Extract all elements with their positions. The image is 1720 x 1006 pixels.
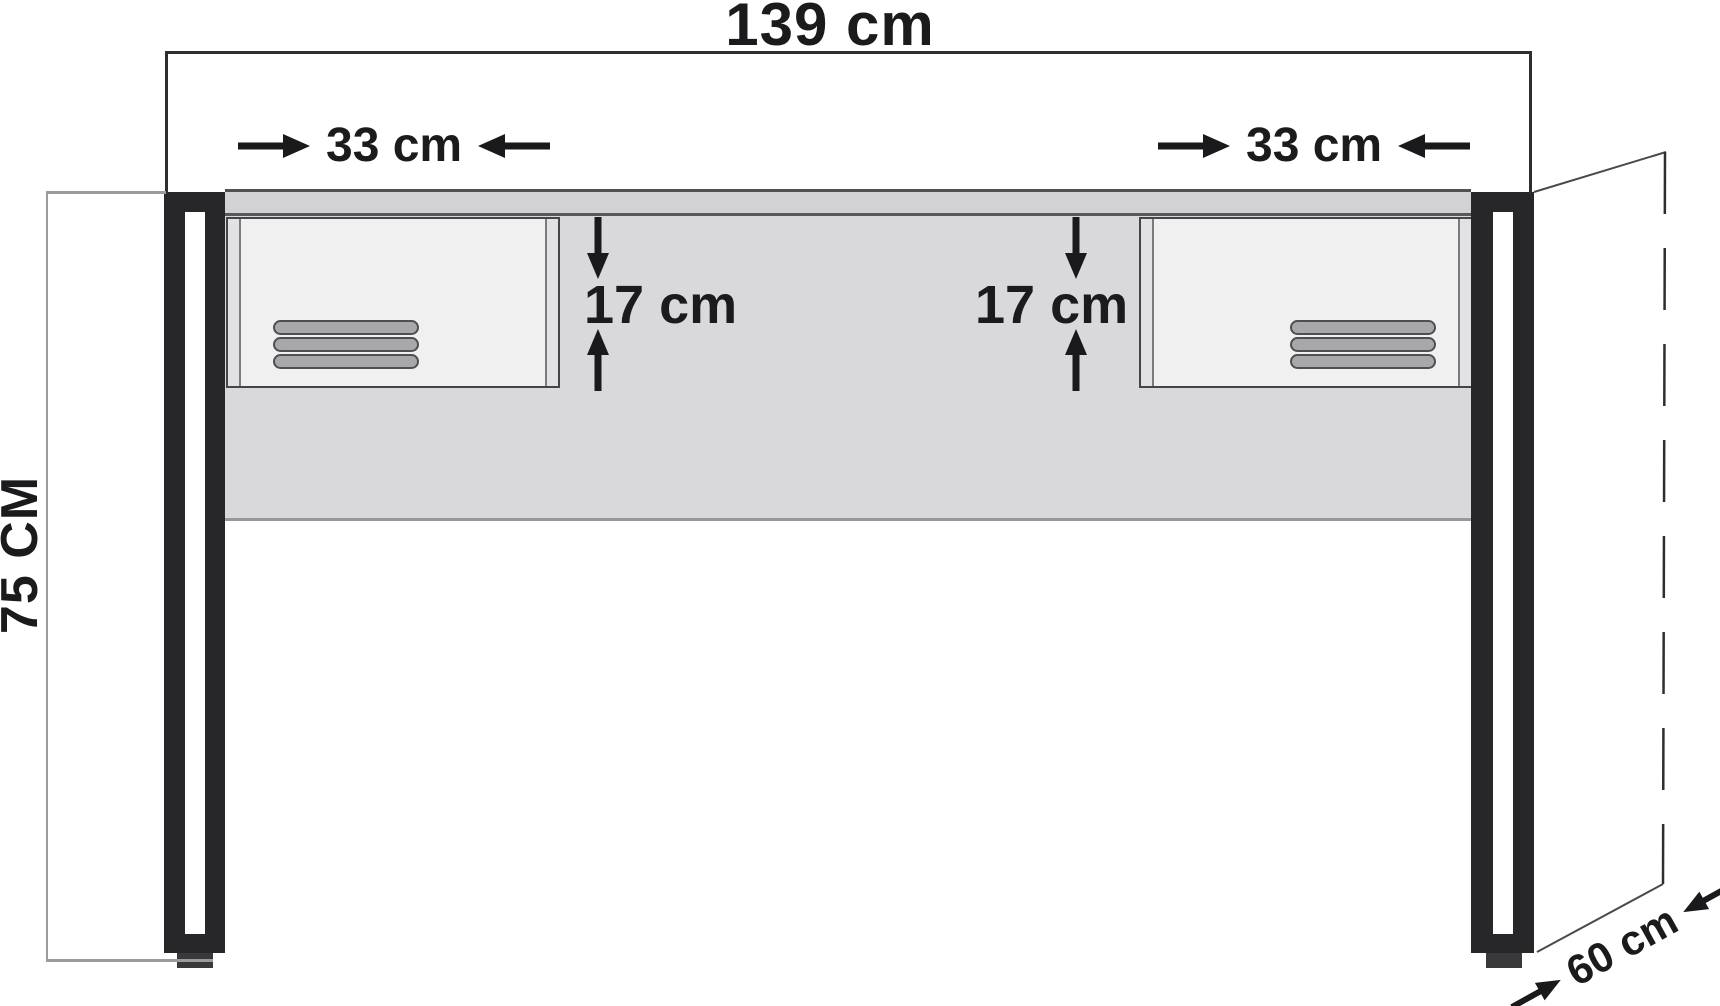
vent-slot-icon [1290,354,1436,369]
left-leg-slot [185,212,205,934]
left-drawer-width-label: 33 cm [326,122,462,170]
desk-dimension-diagram: 139 cm 33 cm 33 cm 17 cm 17 cm 75 CM 60 … [0,0,1720,1006]
width-dimension-extension-left [165,51,168,194]
arrow-right-icon [238,133,310,159]
arrow-up-icon [586,329,610,391]
arrow-down-icon [1064,217,1088,279]
depth-label: 60 cm [1560,899,1685,993]
overall-width-label: 139 cm [630,0,1030,55]
desk-top-edge [225,189,1471,216]
width-dimension-extension-right [1529,51,1532,194]
height-dimension-extension-top [46,191,166,194]
arrow-left-icon [1398,133,1470,159]
height-dimension-extension-bottom [46,959,213,962]
left-drawer-height-label: 17 cm [584,278,737,332]
vent-slot-icon [1290,320,1436,335]
vent-slot-icon [273,354,419,369]
depth-top-edge-line [1534,152,1666,192]
left-drawer-right-edge [545,219,558,386]
right-leg-slot [1493,212,1513,934]
right-drawer-width-dimension: 33 cm [1158,118,1470,174]
left-leg [164,192,225,953]
arrow-left-icon [1677,876,1720,922]
right-leg [1471,192,1534,953]
overall-height-label: 75 CM [0,470,48,640]
vent-slot-icon [273,320,419,335]
right-drawer-width-label: 33 cm [1246,122,1382,170]
arrow-up-icon [1064,329,1088,391]
left-drawer-width-dimension: 33 cm [238,118,550,174]
left-drawer [226,217,560,388]
vent-slot-icon [1290,337,1436,352]
arrow-right-icon [1507,970,1567,1006]
vent-slot-icon [273,337,419,352]
right-foot [1486,953,1522,968]
arrow-left-icon [478,133,550,159]
right-drawer-left-edge [1141,219,1154,386]
left-drawer-left-edge [228,219,241,386]
depth-dashed-line [1663,152,1665,884]
arrow-down-icon [586,217,610,279]
right-drawer-height-label: 17 cm [975,278,1128,332]
right-drawer-right-edge [1458,219,1471,386]
right-drawer [1139,217,1473,388]
arrow-right-icon [1158,133,1230,159]
